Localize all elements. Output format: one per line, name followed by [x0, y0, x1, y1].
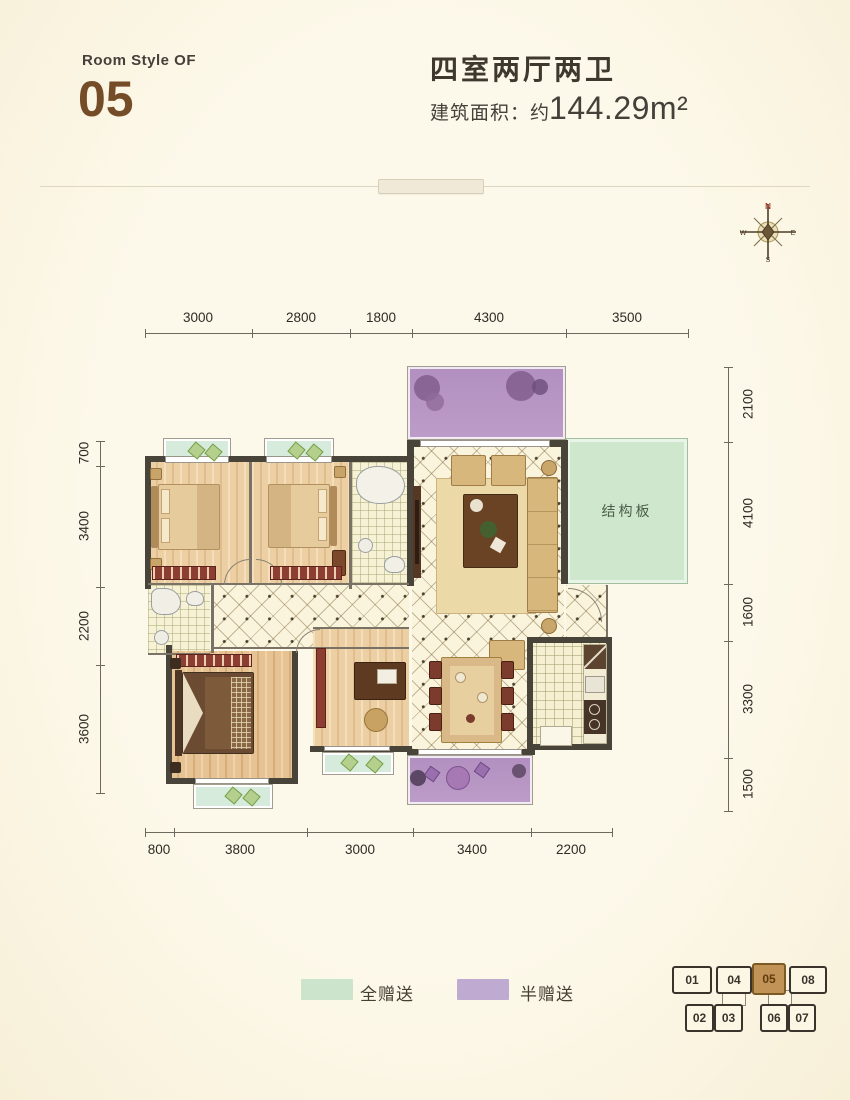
- keyplan-unit-04: 04: [716, 966, 752, 994]
- keyplan-unit-05-highlighted: 05: [752, 963, 786, 995]
- blanket: [197, 485, 219, 549]
- fridge: [584, 645, 606, 669]
- tick: [96, 793, 105, 794]
- keyplan-unit-06: 06: [760, 1004, 788, 1032]
- balcony-cushion: [424, 766, 441, 783]
- wall: [561, 440, 568, 584]
- room-style-label: Room Style OF: [82, 52, 196, 69]
- keyplan-unit-08: 08: [789, 966, 827, 994]
- wardrobe: [270, 566, 342, 580]
- blanket: [205, 677, 231, 749]
- tick: [566, 329, 567, 338]
- plant: [426, 393, 444, 411]
- keyplan-unit-07: 07: [788, 1004, 816, 1032]
- keyplan-unit-03: 03: [714, 1004, 743, 1032]
- dim-top-5: 3500: [599, 310, 655, 325]
- dim-top-2: 2800: [273, 310, 329, 325]
- tick: [724, 442, 733, 443]
- blanket: [269, 485, 291, 547]
- quilt-pattern: [231, 677, 251, 749]
- wall: [292, 651, 298, 780]
- plant: [480, 521, 497, 538]
- partition: [606, 585, 608, 637]
- pillow: [318, 517, 327, 541]
- dining-chair: [429, 687, 442, 705]
- tick: [412, 329, 413, 338]
- window: [420, 440, 550, 447]
- dim-right-2: 4100: [741, 485, 756, 541]
- nightstand: [170, 762, 181, 773]
- area-line: 建筑面积： 约 144.29m²: [430, 90, 688, 127]
- tick: [174, 828, 175, 837]
- kitchen-table: [540, 726, 572, 746]
- bed-headboard: [330, 486, 337, 546]
- pillow: [161, 489, 170, 514]
- dim-top-3: 1800: [353, 310, 409, 325]
- tick: [252, 329, 253, 338]
- plate: [470, 499, 483, 512]
- keyplan-unit-02: 02: [685, 1004, 714, 1032]
- dining-table: [441, 657, 502, 743]
- dim-left-3: 2200: [77, 598, 92, 654]
- partition: [313, 627, 409, 629]
- partition: [211, 585, 214, 653]
- balcony-cushion: [474, 762, 491, 779]
- stove: [584, 700, 606, 734]
- dining-chair: [501, 713, 514, 731]
- master-wardrobe: [176, 654, 252, 667]
- tick: [350, 329, 351, 338]
- dim-bottom-1: 800: [131, 842, 187, 857]
- desk: [354, 662, 406, 700]
- dim-bottom-3: 3000: [332, 842, 388, 857]
- sofa: [527, 477, 558, 613]
- dim-line-right: [728, 367, 729, 811]
- area-value: 144.29m²: [549, 90, 688, 127]
- structural-slab-label: 结构板: [567, 501, 687, 521]
- tick: [96, 466, 105, 467]
- nightstand: [150, 468, 162, 480]
- sink: [154, 630, 169, 645]
- compass-icon: N E S W: [736, 200, 800, 264]
- side-table: [541, 618, 557, 634]
- armchair: [451, 455, 486, 486]
- nightstand: [170, 658, 181, 669]
- balcony-top-half-gift: [407, 366, 566, 440]
- dim-bottom-2: 3800: [212, 842, 268, 857]
- tick: [413, 828, 414, 837]
- dim-right-5: 1500: [741, 756, 756, 812]
- bowl: [466, 714, 475, 723]
- dim-left-1: 700: [77, 425, 92, 481]
- balcony-bottom-half-gift: [407, 755, 533, 805]
- sheet-fold: [183, 673, 203, 753]
- bed-1: [158, 484, 220, 550]
- desk-chair: [364, 708, 388, 732]
- bed-headboard: [151, 486, 158, 548]
- wall: [527, 637, 612, 643]
- coffee-table: [463, 494, 518, 568]
- dining-chair: [501, 661, 514, 679]
- dining-chair: [501, 687, 514, 705]
- tick: [531, 828, 532, 837]
- structural-slab-area: 结构板: [566, 438, 688, 584]
- tv: [415, 500, 419, 564]
- napkin: [490, 537, 506, 553]
- dim-left-2: 3400: [77, 498, 92, 554]
- compass-n: N: [765, 202, 771, 211]
- bookshelf: [316, 648, 326, 728]
- bed-2: [268, 484, 330, 548]
- side-table: [541, 460, 557, 476]
- dining-chair: [429, 661, 442, 679]
- layout-title: 四室两厅两卫: [430, 48, 616, 88]
- burner: [589, 719, 600, 730]
- legend-label-full-gift: 全赠送: [360, 980, 414, 1005]
- dim-right-1: 2100: [741, 376, 756, 432]
- wall: [527, 637, 533, 750]
- toilet: [186, 591, 204, 606]
- dim-top-1: 3000: [170, 310, 226, 325]
- tick: [96, 665, 105, 666]
- nightstand: [334, 466, 346, 478]
- partition: [349, 462, 352, 589]
- dim-line-top: [145, 333, 688, 334]
- dim-top-4: 4300: [461, 310, 517, 325]
- keyplan-unit-01: 01: [672, 966, 712, 994]
- book: [377, 669, 397, 684]
- dim-bottom-5: 2200: [543, 842, 599, 857]
- window: [195, 778, 269, 784]
- compass-s: S: [766, 257, 771, 264]
- legend-label-half-gift: 半赠送: [520, 980, 574, 1005]
- pillow: [318, 489, 327, 513]
- area-label: 建筑面积：: [430, 98, 530, 125]
- dim-right-3: 1600: [741, 584, 756, 640]
- tick: [724, 584, 733, 585]
- compass-e: E: [791, 230, 796, 237]
- room-number: 05: [78, 74, 134, 124]
- window: [324, 746, 390, 751]
- tick: [145, 828, 146, 837]
- dim-right-4: 3300: [741, 671, 756, 727]
- tick: [145, 329, 146, 338]
- plant: [410, 770, 426, 786]
- armchair: [491, 455, 526, 486]
- tick: [724, 811, 733, 812]
- tick: [612, 828, 613, 837]
- legend-swatch-full-gift: [301, 979, 353, 1000]
- pillow: [161, 518, 170, 543]
- plate: [455, 672, 466, 683]
- burner: [589, 704, 600, 715]
- window: [418, 749, 522, 755]
- tick: [96, 587, 105, 588]
- divider-ornament: [378, 179, 484, 194]
- wardrobe: [152, 566, 216, 580]
- shower: [151, 588, 181, 615]
- plant: [512, 764, 526, 778]
- dim-left-4: 3600: [77, 701, 92, 757]
- tick: [96, 441, 105, 442]
- master-bed: [182, 672, 254, 754]
- sink: [358, 538, 373, 553]
- tick: [724, 641, 733, 642]
- dim-line-bottom: [145, 832, 612, 833]
- tick: [688, 329, 689, 338]
- legend-swatch-half-gift: [457, 979, 509, 1000]
- toilet: [384, 556, 405, 573]
- balcony-table: [446, 766, 470, 790]
- kitchen-sink: [585, 676, 605, 693]
- compass-w: W: [740, 230, 747, 237]
- plate: [477, 692, 488, 703]
- tick: [307, 828, 308, 837]
- tick: [724, 758, 733, 759]
- floorplan-page: Room Style OF 05 四室两厅两卫 建筑面积： 约 144.29m²…: [0, 0, 850, 1100]
- bed-headboard: [175, 670, 182, 756]
- bathtub: [356, 466, 405, 504]
- tick: [724, 367, 733, 368]
- dim-bottom-4: 3400: [444, 842, 500, 857]
- dim-line-left: [100, 441, 101, 793]
- dining-chair: [429, 713, 442, 731]
- area-approx: 约: [530, 98, 549, 125]
- plant: [532, 379, 548, 395]
